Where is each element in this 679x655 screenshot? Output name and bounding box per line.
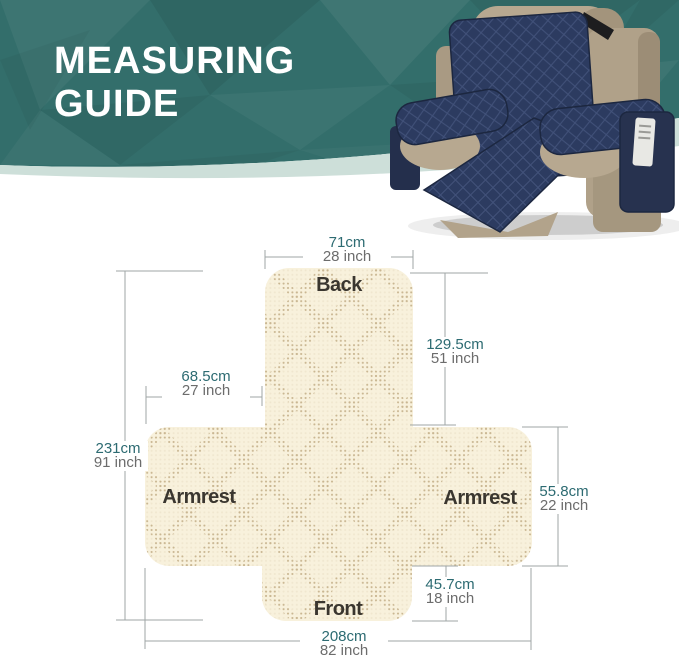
dimension-inch-value: 91 inch xyxy=(90,456,146,470)
dimension-back-height: 129.5cm 51 inch xyxy=(413,337,497,367)
dimension-inch-value: 28 inch xyxy=(305,250,389,264)
panel-label-front: Front xyxy=(298,598,378,621)
dimension-back-width: 71cm 28 inch xyxy=(303,235,391,265)
panel-label-back: Back xyxy=(299,274,379,297)
page-title: MEASURING GUIDE xyxy=(54,40,295,126)
dimension-inch-value: 18 inch xyxy=(414,592,486,606)
dimension-inch-value: 51 inch xyxy=(415,352,495,366)
title-line-1: MEASURING xyxy=(54,40,295,83)
title-line-2: GUIDE xyxy=(54,83,295,126)
dimension-front-height: 45.7cm 18 inch xyxy=(412,577,488,607)
recliner-product-photo xyxy=(388,0,679,240)
dimension-inch-value: 22 inch xyxy=(535,499,593,513)
dimension-total-length: 231cm 91 inch xyxy=(88,441,148,471)
dimension-armrest-height: 55.8cm 22 inch xyxy=(533,484,595,514)
dimension-armrest-width: 68.5cm 27 inch xyxy=(162,369,250,399)
dimension-inch-value: 82 inch xyxy=(302,644,386,655)
remote-control xyxy=(632,117,655,166)
dimension-inch-value: 27 inch xyxy=(164,384,248,398)
measuring-guide-graphic: MEASURING GUIDE xyxy=(0,0,679,655)
dimension-total-width: 208cm 82 inch xyxy=(300,629,388,655)
panel-label-armrest-left: Armrest xyxy=(149,486,249,509)
panel-label-armrest-right: Armrest xyxy=(430,487,530,510)
